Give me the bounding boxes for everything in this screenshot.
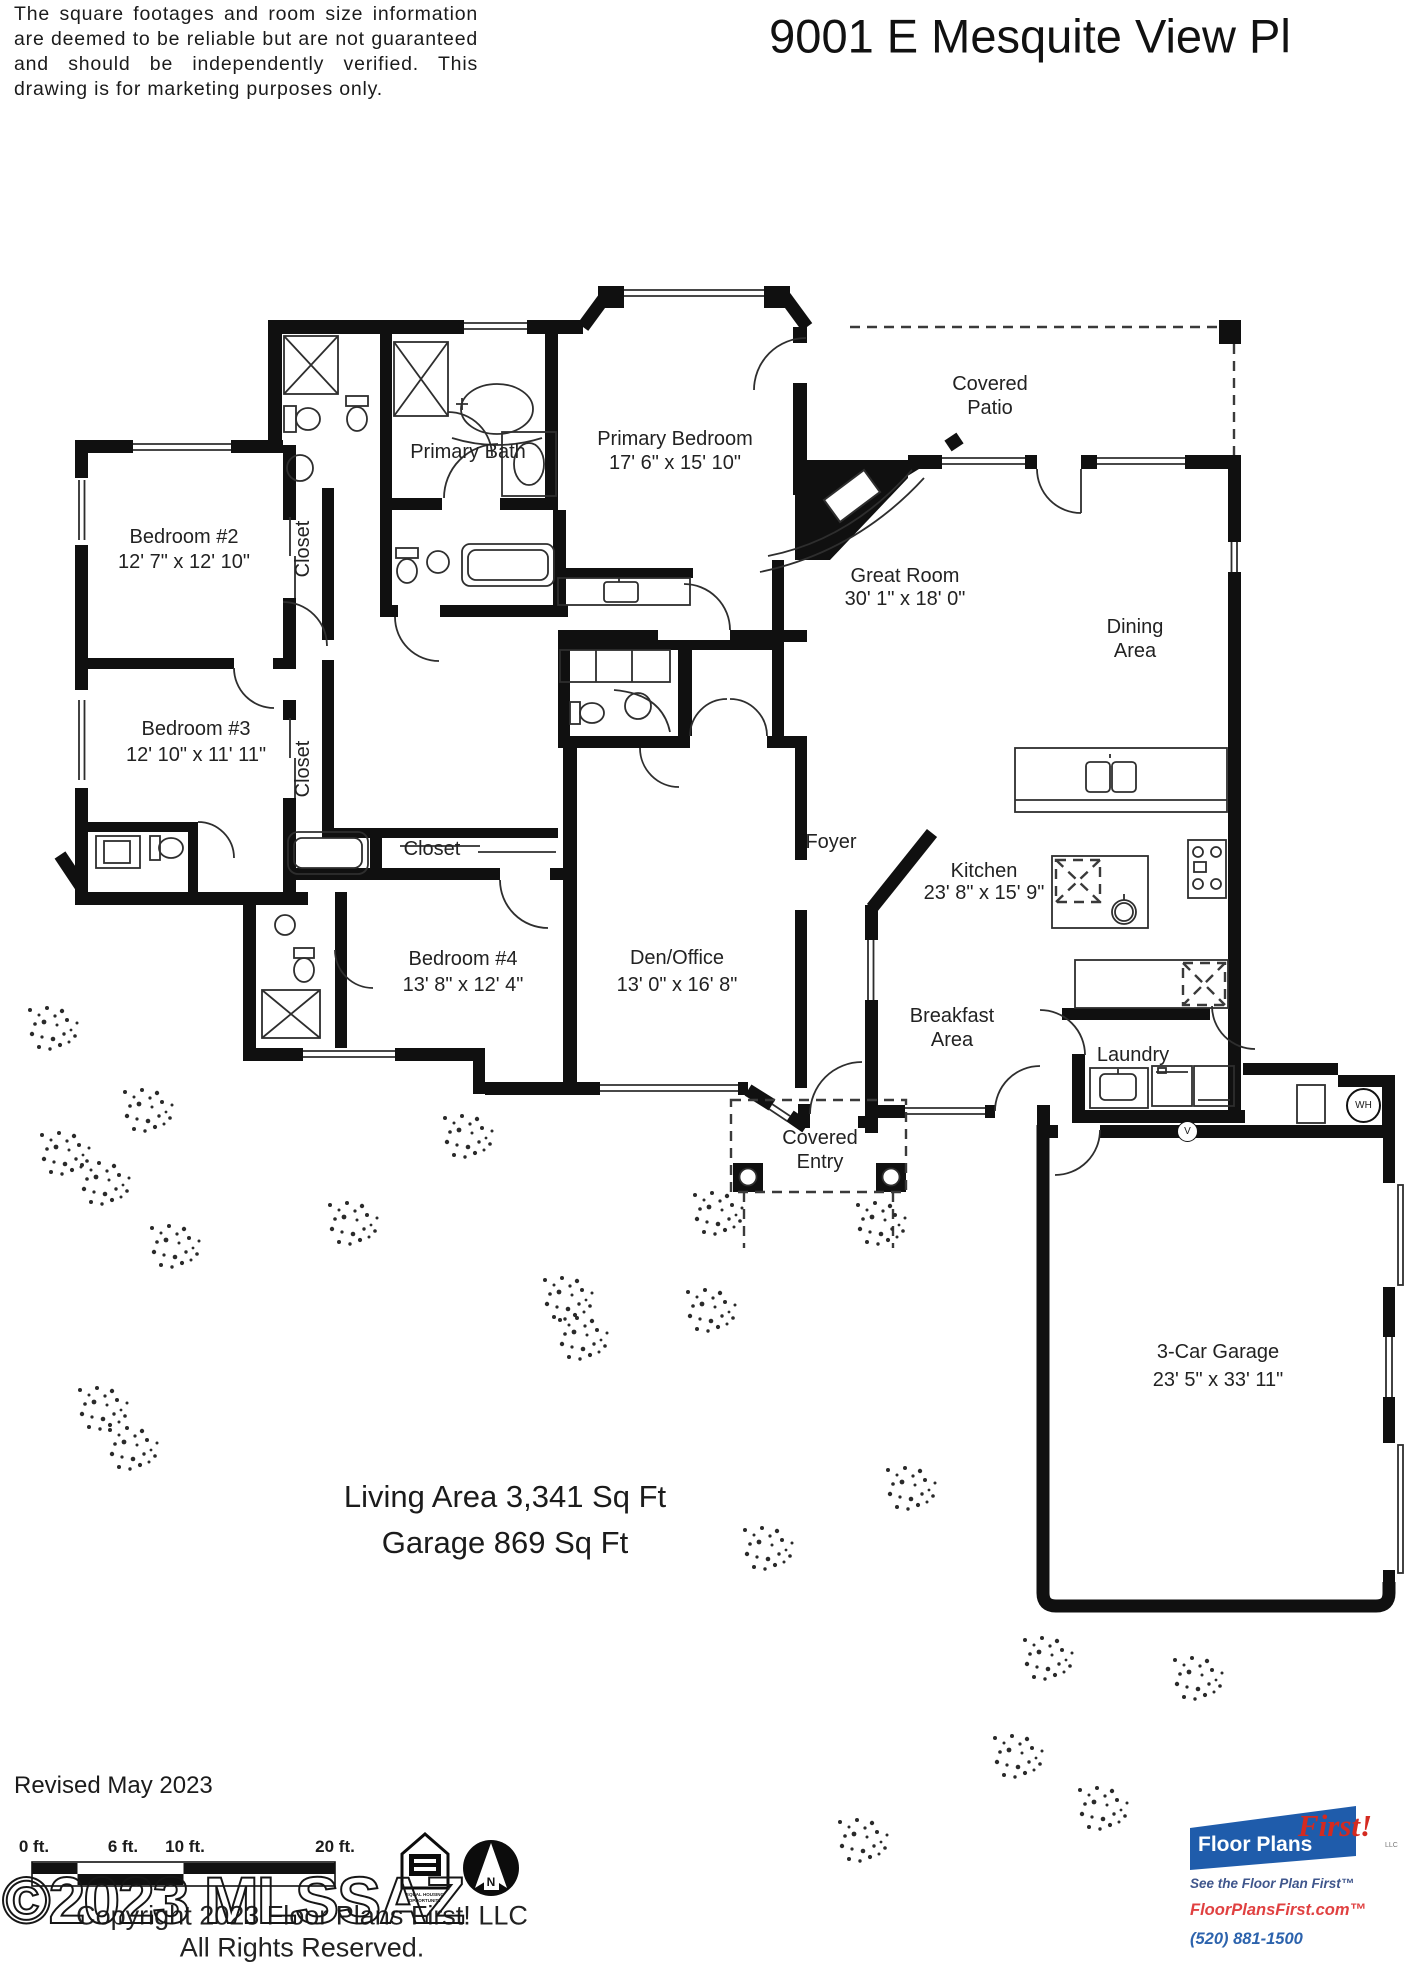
room-label-primary-bath: Primary Bath <box>410 440 526 464</box>
revised-date: Revised May 2023 <box>14 1772 213 1800</box>
room-dims-den-office: 13' 0" x 16' 8" <box>617 973 738 997</box>
scale-label-20: 20 ft. <box>315 1837 355 1857</box>
vent-symbol: V <box>1177 1121 1198 1142</box>
room-dims-primary-bedroom: 17' 6" x 15' 10" <box>609 451 741 475</box>
room-label-den-office: Den/Office <box>630 946 724 970</box>
floor-plans-first-logo: Floor Plans First! LLC See the Floor Pla… <box>1188 1800 1403 1965</box>
scale-label-0: 0 ft. <box>19 1837 49 1857</box>
room-dims-bedroom-4: 13' 8" x 12' 4" <box>403 973 524 997</box>
logo-website[interactable]: FloorPlansFirst.com™ <box>1190 1901 1366 1920</box>
water-heater-symbol: WH <box>1346 1088 1381 1123</box>
scale-label-10: 10 ft. <box>165 1837 205 1857</box>
north-letter: N <box>487 1875 496 1889</box>
room-dims-garage: 23' 5" x 33' 11" <box>1153 1368 1283 1392</box>
room-label-dining-area: Dining Area <box>1088 615 1183 663</box>
room-label-laundry: Laundry <box>1097 1043 1169 1067</box>
diagonal-walls <box>60 297 960 1127</box>
page-title: 9001 E Mesquite View Pl <box>769 9 1291 64</box>
room-label-bedroom-4: Bedroom #4 <box>409 947 518 971</box>
logo-phone: (520) 881-1500 <box>1190 1930 1303 1949</box>
mls-watermark: ©2023 MLSSAZ <box>2 1862 463 1938</box>
scale-label-6: 6 ft. <box>108 1837 138 1857</box>
room-label-primary-bedroom: Primary Bedroom <box>597 427 753 451</box>
room-label-covered-entry: Covered Entry <box>765 1126 875 1174</box>
garage-area-total: Garage 869 Sq Ft <box>382 1525 628 1561</box>
living-area-total: Living Area 3,341 Sq Ft <box>344 1479 666 1515</box>
closet-label-bedroom-3: Closet <box>291 741 315 798</box>
room-dims-kitchen: 23' 8" x 15' 9" <box>924 881 1045 905</box>
room-label-bedroom-2: Bedroom #2 <box>130 525 239 549</box>
room-label-great-room: Great Room <box>851 564 960 588</box>
room-label-breakfast-area: Breakfast Area <box>892 1004 1012 1052</box>
closet-label-hall: Closet <box>404 837 461 861</box>
floor-plan-page: { "page": { "title": "9001 E Mesquite Vi… <box>0 0 1412 1965</box>
room-label-bedroom-3: Bedroom #3 <box>142 717 251 741</box>
closet-label-bedroom-2: Closet <box>291 521 315 578</box>
logo-name: Floor Plans <box>1198 1833 1312 1857</box>
room-label-kitchen: Kitchen <box>951 859 1018 883</box>
logo-first: First! <box>1298 1808 1372 1844</box>
room-dims-bedroom-3: 12' 10" x 11' 11" <box>126 743 266 767</box>
room-label-covered-patio: Covered Patio <box>930 372 1050 420</box>
room-label-garage: 3-Car Garage <box>1157 1340 1279 1364</box>
room-dims-great-room: 30' 1" x 18' 0" <box>845 587 966 611</box>
room-label-foyer: Foyer <box>805 830 856 854</box>
room-dims-bedroom-2: 12' 7" x 12' 10" <box>118 550 250 574</box>
garage-outline <box>1043 1125 1389 1606</box>
logo-tagline: See the Floor Plan First™ <box>1190 1876 1354 1891</box>
disclaimer-text: The square footages and room size inform… <box>14 2 478 102</box>
logo-llc: LLC <box>1385 1842 1398 1849</box>
